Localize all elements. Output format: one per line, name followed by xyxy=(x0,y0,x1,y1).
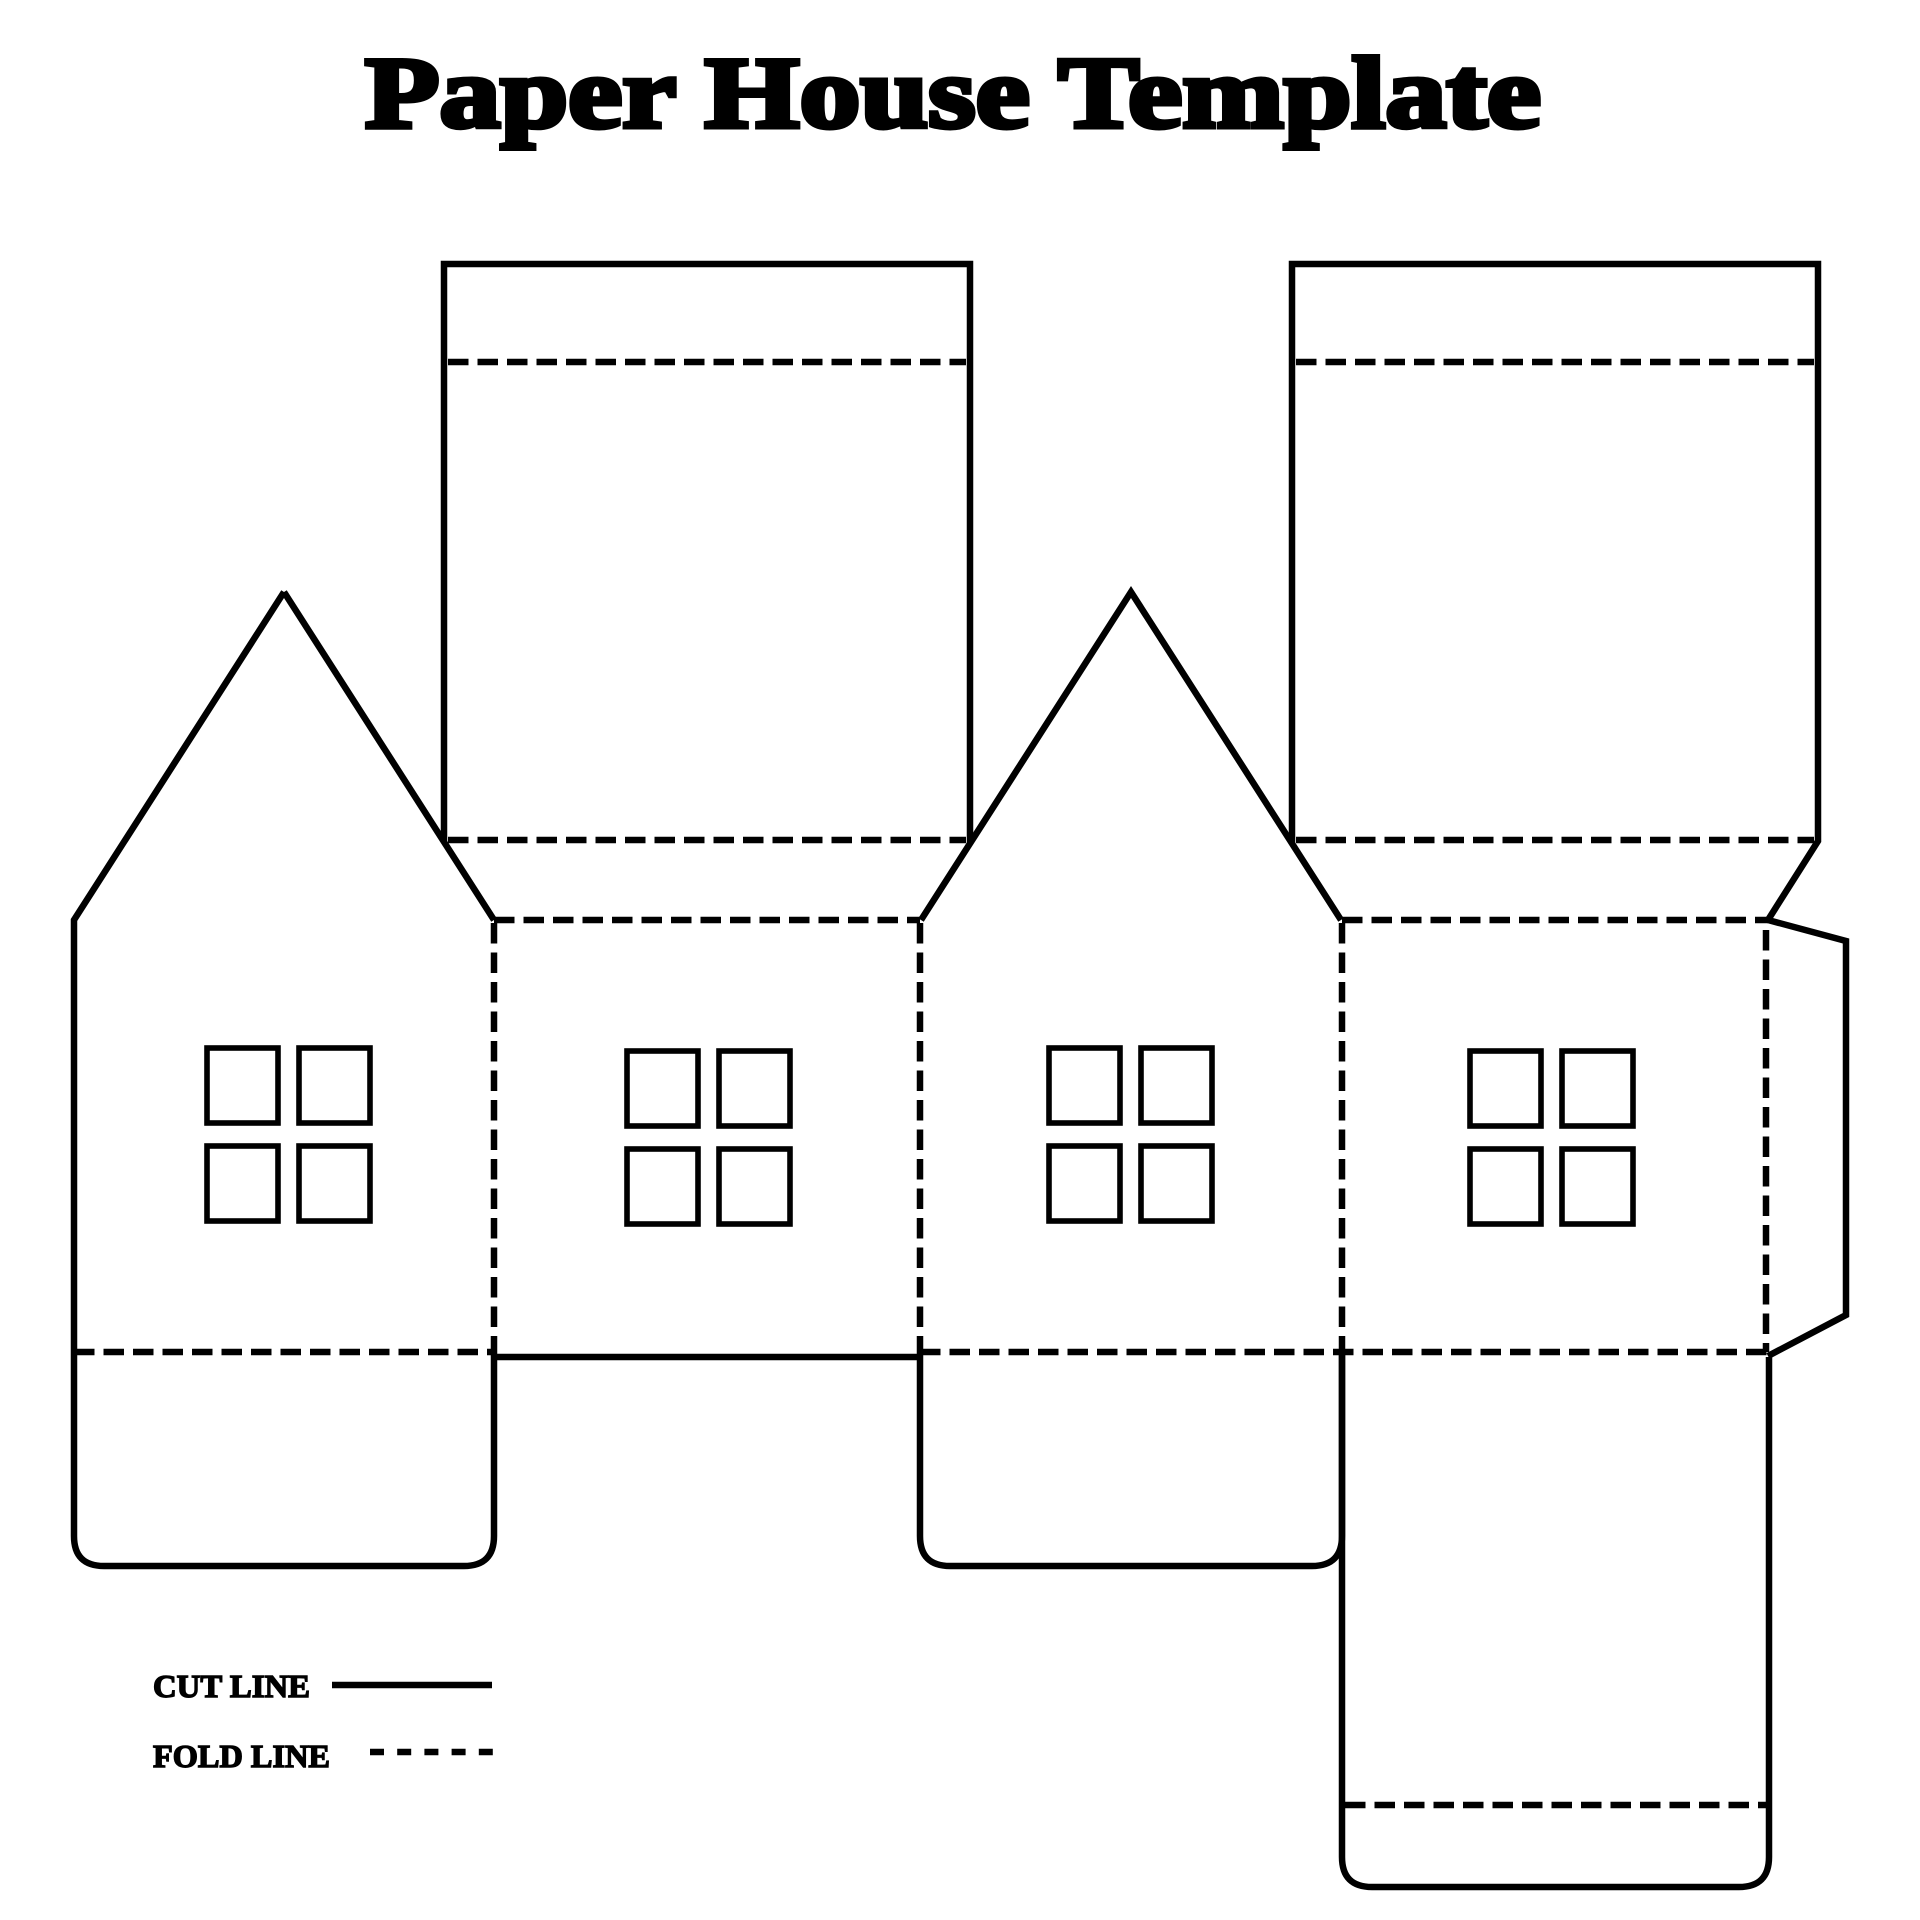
svg-text:Paper House Template: Paper House Template xyxy=(365,37,1541,150)
svg-text:FOLD LINE: FOLD LINE xyxy=(153,1738,330,1774)
svg-text:CUT LINE: CUT LINE xyxy=(153,1668,310,1704)
